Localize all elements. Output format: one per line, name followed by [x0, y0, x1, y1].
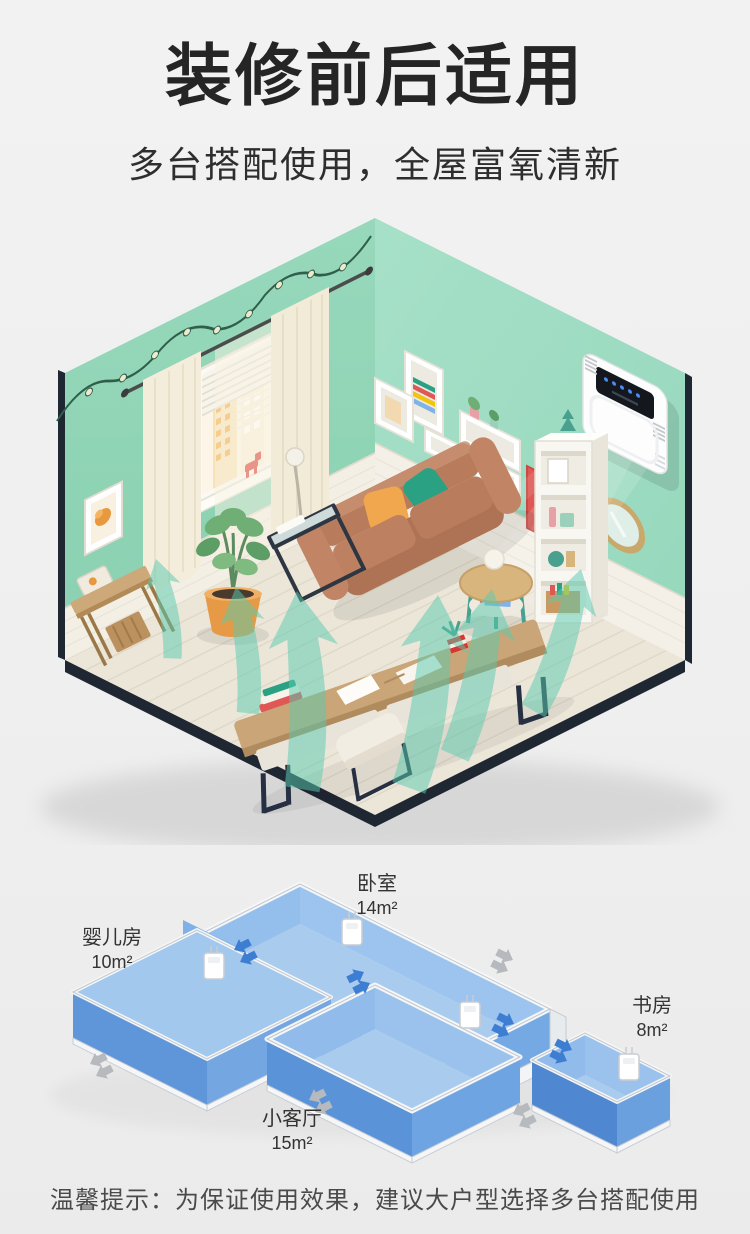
living-room-illustration — [0, 195, 750, 845]
room-area: 14m² — [356, 897, 397, 920]
room-label-bedroom: 卧室 14m² — [356, 872, 397, 920]
room-label-baby: 婴儿房 10m² — [82, 926, 142, 974]
room-label-living: 小客厅 15m² — [262, 1107, 322, 1155]
room-label-study: 书房 8m² — [632, 994, 672, 1042]
room-area: 8m² — [632, 1019, 672, 1042]
product-page: 装修前后适用 多台搭配使用，全屋富氧清新 — [0, 0, 750, 1234]
warm-tip: 温馨提示：为保证使用效果，建议大户型选择多台搭配使用 — [0, 1180, 750, 1215]
ball-lamp — [484, 549, 504, 569]
page-subtitle: 多台搭配使用，全屋富氧清新 — [0, 136, 750, 188]
room-name: 卧室 — [356, 872, 397, 897]
room-name: 小客厅 — [262, 1107, 322, 1132]
room-area: 15m² — [262, 1132, 322, 1155]
room-area: 10m² — [82, 951, 142, 974]
page-title: 装修前后适用 — [0, 40, 750, 114]
room-name: 书房 — [632, 994, 672, 1019]
floorplan-diagram: 婴儿房 10m² 卧室 14m² 书房 8m² 小客厅 15m² — [0, 860, 750, 1170]
living-room-scene — [0, 195, 750, 845]
room-name: 婴儿房 — [82, 926, 142, 951]
